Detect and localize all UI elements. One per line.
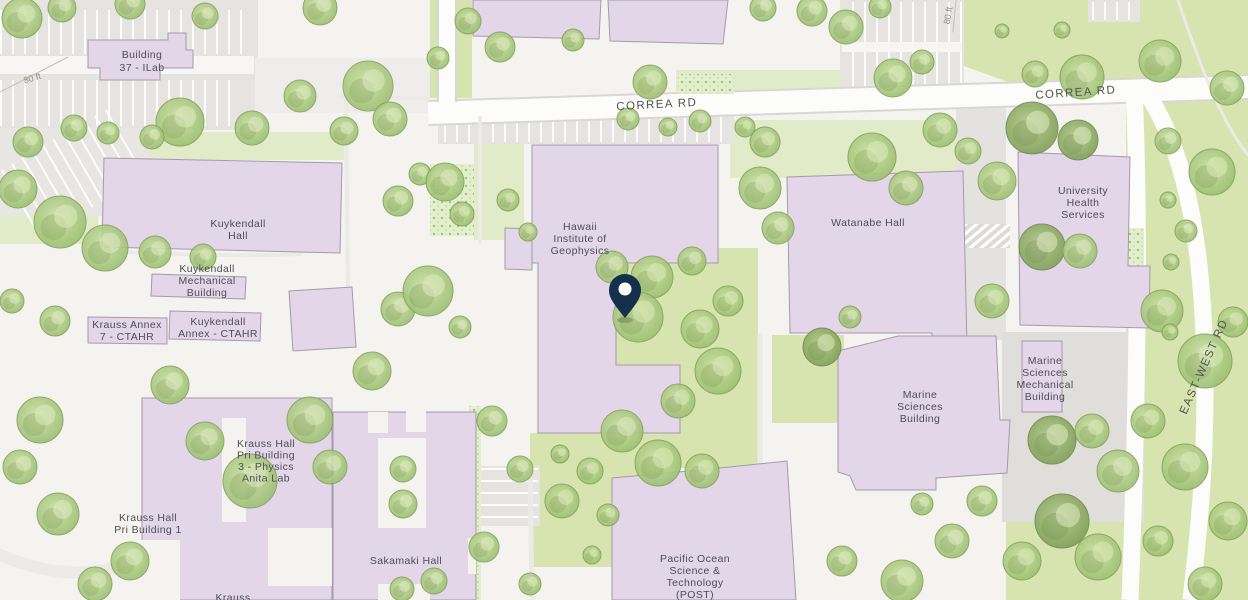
tree-icon xyxy=(389,490,417,518)
tree-icon xyxy=(874,59,912,97)
tree-icon xyxy=(383,186,413,216)
tree-icon xyxy=(695,348,741,394)
tree-icon xyxy=(1210,71,1244,105)
tree-icon xyxy=(545,484,579,518)
tree-icon xyxy=(661,384,695,418)
tree-icon xyxy=(881,560,923,600)
parking-stalls xyxy=(1090,2,1138,20)
tree-icon xyxy=(750,127,780,157)
tree-icon xyxy=(37,493,79,535)
tree-icon xyxy=(1054,22,1070,38)
tree-icon xyxy=(427,47,449,69)
tree-icon xyxy=(449,316,471,338)
courtyard xyxy=(406,410,426,432)
tree-icon xyxy=(713,286,743,316)
tree-icon xyxy=(40,306,70,336)
map-label-watanabe-hall: Watanabe Hall xyxy=(831,217,905,229)
tree-icon xyxy=(678,247,706,275)
tree-icon xyxy=(923,113,957,147)
tree-icon xyxy=(633,65,667,99)
tree-icon xyxy=(601,410,643,452)
tree-icon xyxy=(910,50,934,74)
tree-icon xyxy=(3,450,37,484)
map-label-krauss-annex-7-ctahr: Krauss Annex7 - CTAHR xyxy=(92,319,162,343)
tree-icon xyxy=(827,546,857,576)
tree-icon xyxy=(421,568,447,594)
location-pin-dot xyxy=(619,283,632,296)
tree-icon xyxy=(1003,542,1041,580)
tree-icon xyxy=(750,0,776,21)
tree-icon xyxy=(1143,526,1173,556)
tree-icon xyxy=(403,266,453,316)
tree-icon xyxy=(1058,120,1098,160)
tree-icon xyxy=(450,202,474,226)
tree-icon xyxy=(235,111,269,145)
tree-icon xyxy=(955,138,981,164)
parking-lot xyxy=(255,58,430,113)
tree-icon xyxy=(139,236,171,268)
map-label-sakamaki-hall: Sakamaki Hall xyxy=(370,555,442,567)
tree-icon xyxy=(287,397,333,443)
tree-icon xyxy=(78,567,112,600)
tree-icon xyxy=(519,223,537,241)
tree-icon xyxy=(313,450,347,484)
map-label-kuykendall-mechanical-building: KuykendallMechanicalBuilding xyxy=(178,263,235,299)
tree-icon xyxy=(839,306,861,328)
tree-icon xyxy=(689,110,711,132)
building-top-building-east[interactable] xyxy=(608,0,728,44)
map-label-krauss: Krauss xyxy=(215,592,250,600)
tree-icon xyxy=(1155,128,1181,154)
tree-icon xyxy=(485,32,515,62)
tree-icon xyxy=(1141,290,1183,332)
tree-icon xyxy=(373,102,407,136)
tree-icon xyxy=(685,454,719,488)
tree-icon xyxy=(562,29,584,51)
tree-icon xyxy=(17,397,63,443)
shrub-bed xyxy=(678,74,734,94)
tree-icon xyxy=(469,532,499,562)
tree-icon xyxy=(330,117,358,145)
tree-icon xyxy=(1022,61,1048,87)
tree-icon xyxy=(507,456,533,482)
tree-icon xyxy=(659,118,677,136)
tree-icon xyxy=(1160,192,1176,208)
tree-icon xyxy=(1131,404,1165,438)
tree-icon xyxy=(995,24,1009,38)
tree-icon xyxy=(34,196,86,248)
tree-icon xyxy=(597,504,619,526)
map-label-marine-sciences-building: MarineSciencesBuilding xyxy=(897,389,943,425)
tree-icon xyxy=(1063,234,1097,268)
map-viewport[interactable]: Building37 - ILabKuykendallHallKuykendal… xyxy=(0,0,1248,600)
tree-icon xyxy=(1139,40,1181,82)
tree-icon xyxy=(82,225,128,271)
building-kuykendall-hall[interactable] xyxy=(102,158,342,253)
tree-icon xyxy=(426,163,464,201)
tree-icon xyxy=(739,167,781,209)
tree-icon xyxy=(140,125,164,149)
tree-icon xyxy=(186,422,224,460)
tree-icon xyxy=(497,189,519,211)
tree-icon xyxy=(551,445,569,463)
tree-icon xyxy=(1163,254,1179,270)
tree-icon xyxy=(967,486,997,516)
campus-map[interactable]: Building37 - ILabKuykendallHallKuykendal… xyxy=(0,0,1248,600)
tree-icon xyxy=(583,546,601,564)
tree-icon xyxy=(1188,567,1222,600)
tree-icon xyxy=(1035,494,1089,548)
tree-icon xyxy=(762,212,794,244)
tree-icon xyxy=(1162,444,1208,490)
map-label-krauss-hall-pri-building-1: Krauss HallPri Building 1 xyxy=(114,512,181,536)
tree-icon xyxy=(2,0,42,38)
tree-icon xyxy=(1019,224,1065,270)
tree-icon xyxy=(869,0,891,18)
tree-icon xyxy=(1209,502,1247,540)
tree-icon xyxy=(889,171,923,205)
tree-icon xyxy=(455,8,481,34)
tree-icon xyxy=(0,289,24,313)
building-mid-building[interactable] xyxy=(289,287,356,351)
tree-icon xyxy=(1075,414,1109,448)
tree-icon xyxy=(978,162,1016,200)
tree-icon xyxy=(1189,149,1235,195)
tree-icon xyxy=(0,170,37,208)
tree-icon xyxy=(1097,450,1139,492)
tree-icon xyxy=(681,310,719,348)
tree-icon xyxy=(911,493,933,515)
tree-icon xyxy=(284,80,316,112)
parking-aisle xyxy=(842,42,962,52)
tree-icon xyxy=(477,406,507,436)
tree-icon xyxy=(13,127,43,157)
tree-icon xyxy=(390,577,414,600)
tree-icon xyxy=(1028,416,1076,464)
tree-icon xyxy=(635,440,681,486)
tree-icon xyxy=(577,458,603,484)
tree-icon xyxy=(848,133,896,181)
road-east-west-rd-west-lane xyxy=(1130,88,1137,600)
tree-icon xyxy=(97,122,119,144)
tree-icon xyxy=(935,524,969,558)
tree-icon xyxy=(390,456,416,482)
tree-icon xyxy=(1006,102,1058,154)
map-label-krauss-hall-pri-building-3: Krauss HallPri Building3 - PhysicsAnita … xyxy=(237,438,295,485)
tree-icon xyxy=(1162,324,1178,340)
map-label-building-37-ilab: Building37 - ILab xyxy=(119,49,164,74)
tree-icon xyxy=(803,328,841,366)
tree-icon xyxy=(151,366,189,404)
tree-icon xyxy=(829,10,863,44)
tree-icon xyxy=(975,284,1009,318)
courtyard xyxy=(368,412,388,433)
tree-icon xyxy=(353,352,391,390)
tree-icon xyxy=(111,542,149,580)
tree-icon xyxy=(797,0,827,26)
tree-icon xyxy=(1175,220,1197,242)
tree-icon xyxy=(61,115,87,141)
courtyard xyxy=(268,528,332,586)
tree-icon xyxy=(192,3,218,29)
tree-icon xyxy=(1075,534,1121,580)
tree-icon xyxy=(519,573,541,595)
